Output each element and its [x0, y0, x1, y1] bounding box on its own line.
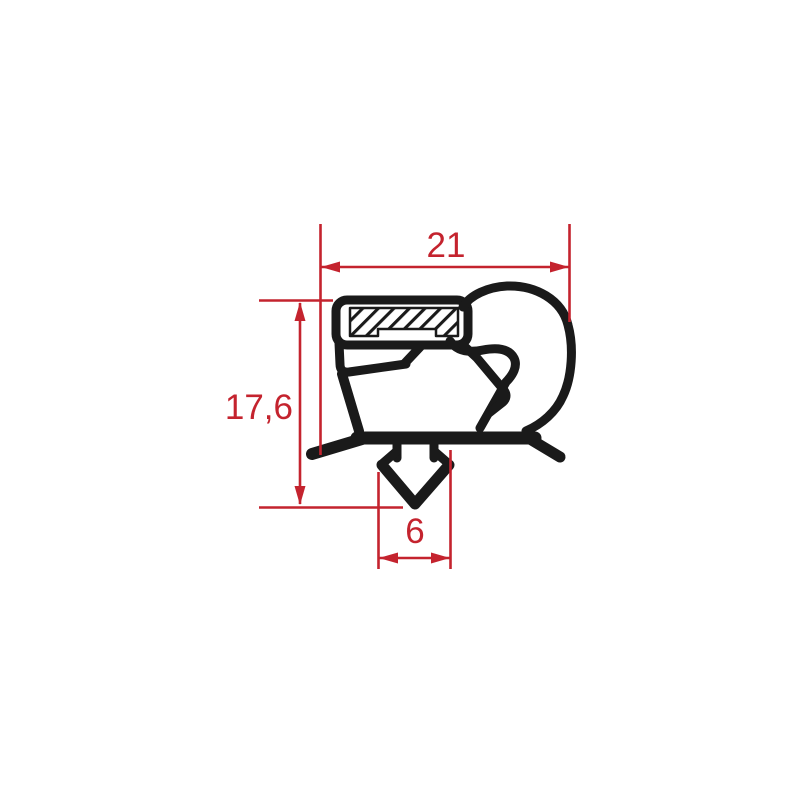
arrowhead-21-right	[550, 262, 569, 273]
anchor-dart	[382, 443, 449, 504]
gasket-profile	[312, 286, 571, 504]
arrowhead-6-right	[431, 553, 450, 564]
arrowhead-17-6-down	[295, 486, 306, 505]
arrowhead-21-left	[321, 262, 340, 273]
gasket-profile-drawing: 21 17,6 6	[0, 0, 800, 800]
dart-point	[382, 465, 449, 504]
dimension-label-top-width: 21	[427, 226, 466, 265]
arrowhead-6-left	[379, 553, 398, 564]
technical-drawing-page: 21 17,6 6	[0, 0, 800, 800]
body-left-wall	[342, 374, 359, 431]
arrowhead-17-6-up	[295, 302, 306, 321]
dimension-label-bottom-width: 6	[405, 512, 424, 551]
base-right-foot	[530, 439, 560, 457]
dimension-label-left-height: 17,6	[225, 388, 293, 427]
bulb-inner-wall	[450, 341, 515, 428]
dimensions: 21 17,6 6	[225, 224, 570, 569]
